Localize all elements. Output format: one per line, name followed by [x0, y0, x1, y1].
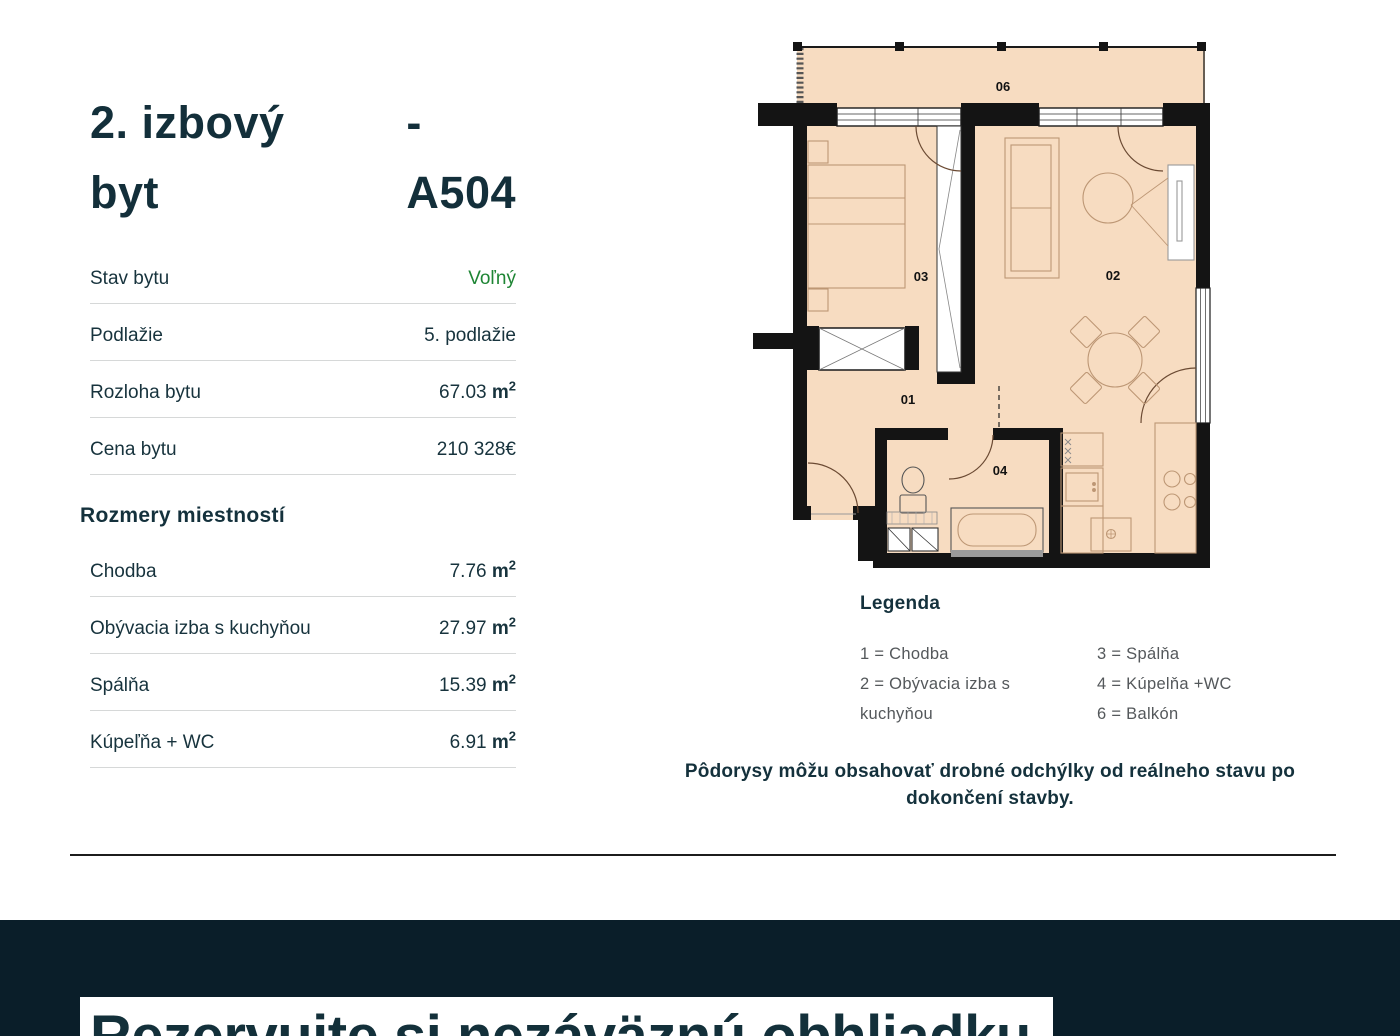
row-label: Kúpeľňa + WC — [90, 732, 214, 754]
reservation-card: Rezervujte si nezáväznú obhliadku — [80, 997, 1053, 1036]
room-label-bath: 04 — [993, 463, 1008, 478]
reservation-section: Rezervujte si nezáväznú obhliadku — [0, 920, 1400, 1036]
apartment-details-table: Stav bytu Voľný Podlažie 5. podlažie Roz… — [90, 247, 516, 475]
legend: Legenda 1 = Chodba 2 = Obývacia izba s k… — [860, 593, 1320, 729]
rooms-section-heading: Rozmery miestností — [80, 504, 285, 528]
title-line: A504 — [406, 158, 516, 228]
row-label: Chodba — [90, 561, 157, 583]
legend-item: 2 = Obývacia izba s kuchyňou — [860, 669, 1038, 729]
table-row-floor: Podlažie 5. podlažie — [90, 304, 516, 361]
room-label-hall: 01 — [901, 392, 915, 407]
title-line: - — [406, 88, 516, 158]
row-label: Podlažie — [90, 325, 163, 347]
section-divider — [70, 854, 1336, 856]
room-sizes-table: Chodba 7.76 m2 Obývacia izba s kuchyňou … — [90, 540, 516, 768]
status-badge: Voľný — [468, 268, 516, 290]
legend-column-1: 1 = Chodba 2 = Obývacia izba s kuchyňou — [860, 639, 1038, 729]
legend-item: 6 = Balkón — [1097, 699, 1297, 729]
row-value: 67.03 m2 — [439, 382, 516, 404]
legend-column-2: 3 = Spálňa 4 = Kúpelňa +WC 6 = Balkón — [1097, 639, 1297, 729]
page-title-left: 2. izbový byt — [90, 88, 285, 228]
table-row-bathroom: Kúpeľňa + WC 6.91 m2 — [90, 711, 516, 768]
row-value: 15.39 m2 — [439, 675, 516, 697]
row-label: Cena bytu — [90, 439, 177, 461]
legend-item: 4 = Kúpelňa +WC — [1097, 669, 1297, 699]
table-row-price: Cena bytu 210 328€ — [90, 418, 516, 475]
table-row-area: Rozloha bytu 67.03 m2 — [90, 361, 516, 418]
page-title: 2. izbový byt - A504 — [90, 88, 516, 228]
row-label: Spálňa — [90, 675, 149, 697]
legend-item: 1 = Chodba — [860, 639, 1038, 669]
title-line: 2. izbový — [90, 88, 285, 158]
table-row-hall: Chodba 7.76 m2 — [90, 540, 516, 597]
row-value: 210 328€ — [437, 439, 516, 461]
apartment-detail-page: 2. izbový byt - A504 Stav bytu Voľný Pod… — [0, 0, 1400, 1036]
room-label-balcony: 06 — [996, 79, 1010, 94]
table-row-living: Obývacia izba s kuchyňou 27.97 m2 — [90, 597, 516, 654]
floor-plan-image: 06 03 02 01 04 — [753, 38, 1213, 568]
row-label: Stav bytu — [90, 268, 169, 290]
reservation-heading: Rezervujte si nezáväznú obhliadku — [80, 997, 1053, 1036]
row-value: 27.97 m2 — [439, 618, 516, 640]
row-value: 7.76 m2 — [450, 561, 516, 583]
room-label-living: 02 — [1106, 268, 1120, 283]
row-value: 5. podlažie — [424, 325, 516, 347]
floor-plan-svg: 06 03 02 01 04 — [753, 38, 1213, 568]
room-label-bedroom: 03 — [914, 269, 928, 284]
row-label: Obývacia izba s kuchyňou — [90, 618, 311, 640]
floorplan-disclaimer: Pôdorysy môžu obsahovať drobné odchýlky … — [645, 758, 1335, 812]
table-row-status: Stav bytu Voľný — [90, 247, 516, 304]
title-line: byt — [90, 158, 285, 228]
legend-item: 3 = Spálňa — [1097, 639, 1297, 669]
table-row-bedroom: Spálňa 15.39 m2 — [90, 654, 516, 711]
legend-heading: Legenda — [860, 593, 1320, 615]
row-value: 6.91 m2 — [450, 732, 516, 754]
row-label: Rozloha bytu — [90, 382, 201, 404]
page-title-right: - A504 — [406, 88, 516, 228]
